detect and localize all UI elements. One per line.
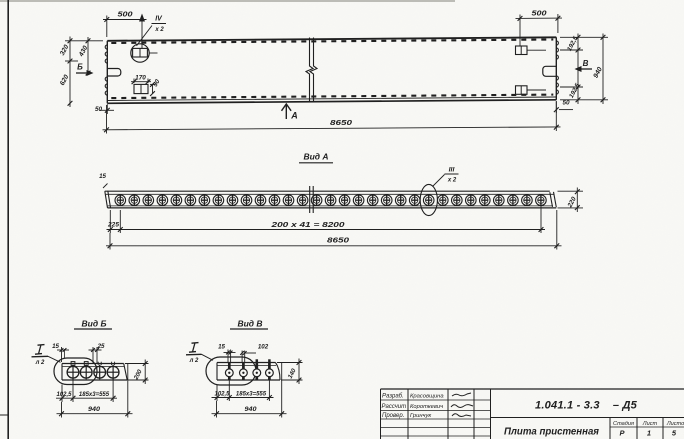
svg-text:50: 50 <box>95 106 103 113</box>
svg-text:500: 500 <box>532 9 548 18</box>
svg-text:102,5: 102,5 <box>214 391 230 397</box>
svg-text:Вид В: Вид В <box>237 319 262 329</box>
svg-text:940: 940 <box>245 406 257 413</box>
svg-text:8650: 8650 <box>330 118 353 127</box>
svg-text:500: 500 <box>118 10 134 19</box>
svg-text:л 2: л 2 <box>189 358 199 364</box>
svg-text:Короткевич: Короткевич <box>410 404 443 410</box>
svg-text:102,5: 102,5 <box>56 392 72 398</box>
svg-text:185х3=555: 185х3=555 <box>236 391 267 397</box>
svg-text:8650: 8650 <box>327 236 350 245</box>
svg-text:Вид А: Вид А <box>303 152 328 162</box>
svg-text:25: 25 <box>97 343 105 350</box>
svg-text:х 2: х 2 <box>447 178 457 184</box>
svg-text:170: 170 <box>135 75 146 82</box>
svg-text:ІІІ: ІІІ <box>449 167 455 174</box>
svg-text:185х3=555: 185х3=555 <box>79 392 110 398</box>
svg-text:В: В <box>583 59 589 68</box>
svg-text:Рассчит: Рассчит <box>382 404 407 410</box>
svg-text:50: 50 <box>562 100 570 107</box>
svg-text:Листов: Листов <box>666 421 684 427</box>
svg-text:х 2: х 2 <box>154 27 164 33</box>
svg-text:Красовщина: Красовщина <box>410 394 444 400</box>
svg-text:200 x 41 = 8200: 200 x 41 = 8200 <box>270 220 344 229</box>
svg-text:1.041.1 - 3.3 – Д5: 1.041.1 - 3.3 – Д5 <box>535 400 638 412</box>
svg-text:Вид Б: Вид Б <box>82 319 107 329</box>
svg-text:102: 102 <box>258 344 269 351</box>
svg-text:Разраб.: Разраб. <box>382 394 404 400</box>
svg-text:1: 1 <box>647 429 651 438</box>
svg-text:Плита пристенная: Плита пристенная <box>504 427 599 438</box>
svg-text:15: 15 <box>99 173 106 180</box>
svg-text:15: 15 <box>218 344 225 351</box>
svg-text:225: 225 <box>107 222 119 229</box>
svg-text:Б: Б <box>77 63 83 72</box>
svg-text:940: 940 <box>88 406 100 413</box>
svg-text:Провер.: Провер. <box>382 413 404 419</box>
svg-text:А: А <box>290 111 298 121</box>
svg-text:л 2: л 2 <box>35 360 45 366</box>
svg-text:15: 15 <box>52 343 59 350</box>
svg-text:Стадия: Стадия <box>613 421 634 427</box>
svg-text:Лист: Лист <box>642 421 658 427</box>
svg-text:Гринчук: Гринчук <box>410 413 431 419</box>
